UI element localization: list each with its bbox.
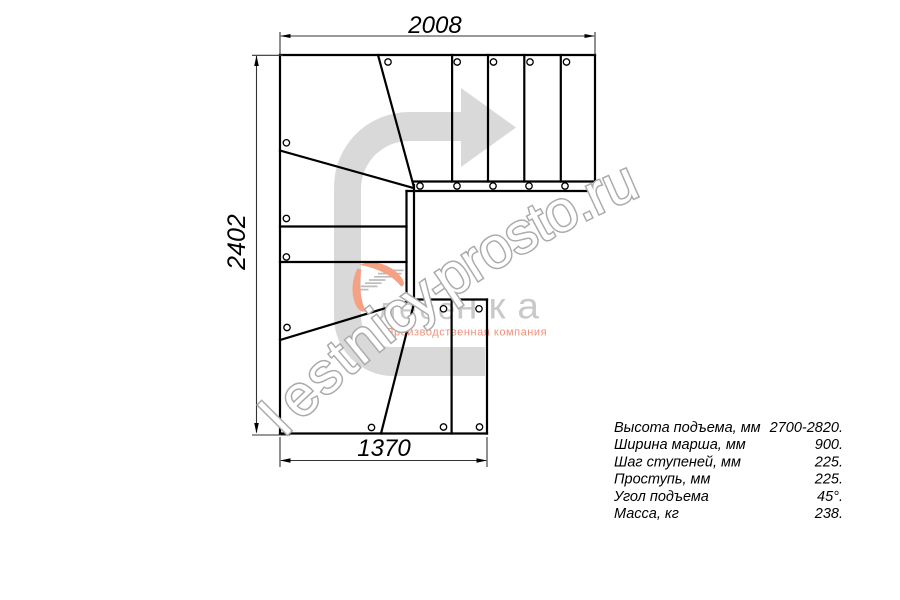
svg-text:45°.: 45°. (817, 489, 843, 505)
svg-text:Угол подъема: Угол подъема (613, 489, 709, 505)
svg-text:2008: 2008 (407, 12, 462, 39)
svg-text:Ширина марша, мм: Ширина марша, мм (614, 437, 746, 453)
svg-text:Шаг ступеней, мм: Шаг ступеней, мм (614, 454, 741, 470)
svg-text:900.: 900. (815, 437, 843, 453)
svg-text:238.: 238. (814, 506, 843, 522)
svg-text:Проступь, мм: Проступь, мм (614, 472, 710, 488)
svg-text:2700-2820.: 2700-2820. (769, 420, 843, 436)
svg-text:Масса, кг: Масса, кг (614, 506, 679, 522)
svg-text:2402: 2402 (223, 214, 251, 271)
svg-text:Высота подъема, мм: Высота подъема, мм (614, 420, 761, 436)
svg-text:1370: 1370 (357, 435, 411, 462)
svg-text:225.: 225. (814, 472, 843, 488)
svg-text:225.: 225. (814, 454, 843, 470)
